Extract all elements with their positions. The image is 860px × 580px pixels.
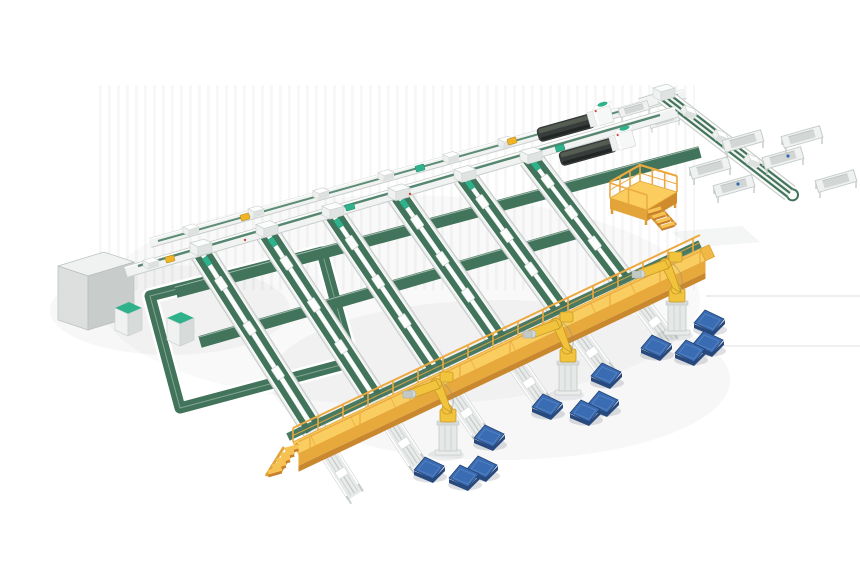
factory-render: Automated panel sorting and palletizing … [0, 0, 860, 580]
scene-canvas: 3D render on white background: dual main… [0, 0, 860, 580]
control-cabinet [115, 302, 142, 336]
control-cabinet [167, 312, 194, 346]
